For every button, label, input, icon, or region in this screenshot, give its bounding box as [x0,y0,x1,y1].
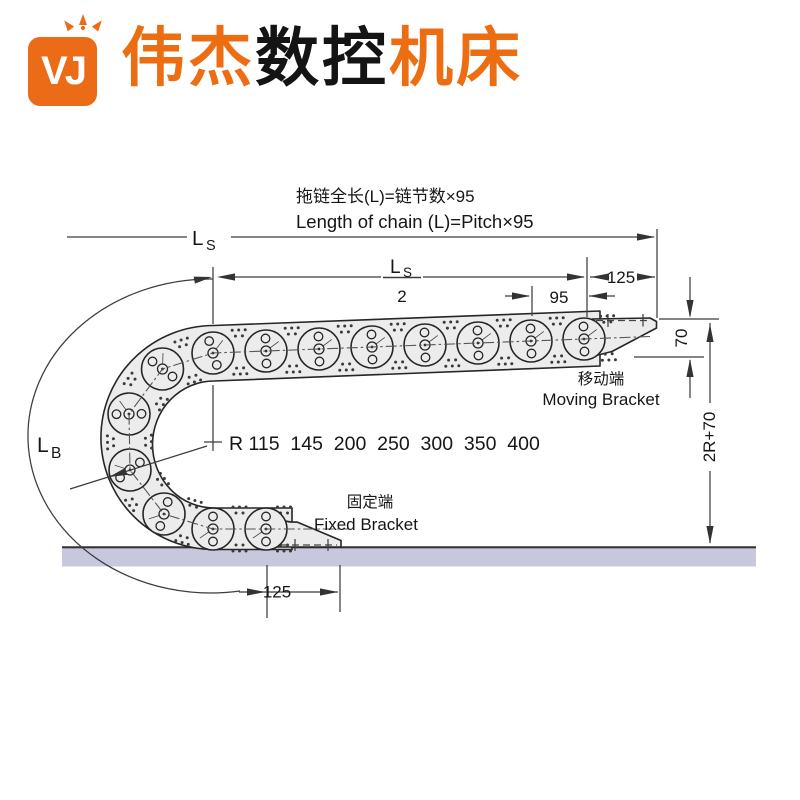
label-lb-sub: B [51,445,61,462]
rivet-dot [238,550,241,553]
rivet-dot [553,355,556,358]
rivet-dot [550,361,553,364]
label-dim-125-bottom: 125 [263,583,291,602]
label-moving-bracket-cn: 移动端 [578,370,625,388]
rivet-dot [235,544,238,547]
rivet-dot [144,444,147,447]
link-hole [205,337,214,346]
rivet-dot [167,482,170,485]
label-dim-2r-70: 2R+70 [700,412,719,463]
rivet-dot [188,376,191,379]
dimension-arrowhead [706,526,713,544]
rivet-dot [456,320,459,323]
rivet-dot [232,550,235,553]
rivet-dot [239,373,242,376]
rivet-dot [166,398,169,401]
rivet-dot [555,317,558,320]
rivet-dot [235,367,238,370]
rivet-dot [163,477,166,480]
ground-band [62,549,756,567]
rivet-dot [391,367,394,370]
rivet-dot [238,506,241,509]
rivet-dot [276,550,279,553]
rivet-dot [457,364,460,367]
rivet-dot [337,325,340,328]
rivet-dot [394,361,397,364]
rivet-dot [607,359,610,362]
dimension-arrowhead [320,588,338,595]
label-ls2-sub: S [403,265,412,280]
link-hole [261,334,270,343]
dimension-arrowhead [217,273,235,280]
rivet-dot [194,374,197,377]
rivet-dot [283,506,286,509]
label-ls2-denominator: 2 [397,287,406,306]
rivet-dot [601,359,604,362]
rivet-dot [614,358,617,361]
rivet-dot [159,397,162,400]
link-hole [580,347,589,356]
rivet-dot [112,444,115,447]
rivet-dot [557,361,560,364]
rivet-dot [602,321,605,324]
rivet-dot [398,367,401,370]
rivet-dot [181,541,184,544]
rivet-dot [241,334,244,337]
rivet-dot [174,539,177,542]
rivet-dot [187,543,190,546]
rivet-dot [188,504,191,507]
dimension-arrowhead [512,292,530,299]
rivet-dot [446,327,449,330]
link-hole [367,330,376,339]
rivet-dot [288,365,291,368]
rivet-dot [510,362,513,365]
rivet-dot [497,363,500,366]
dimension-arrowhead [686,359,693,377]
rivet-dot [604,353,607,356]
link-hole [156,522,165,531]
rivet-dot [447,359,450,362]
link-hole [168,372,177,381]
link-hole [163,498,172,507]
rivet-dot [106,434,109,437]
rivet-dot [496,319,499,322]
rivet-dot [179,534,182,537]
label-lb: L [37,434,49,457]
rivet-dot [348,362,351,365]
rivet-dot [351,368,354,371]
rivet-dot [237,329,240,332]
rivet-dot [396,323,399,326]
rivet-dot [502,319,505,322]
rivet-dot [404,366,407,369]
link-hole [136,458,145,467]
rivet-dot [231,329,234,332]
rivet-dot [106,441,109,444]
link-hole [473,326,482,335]
rivet-dot [298,370,301,373]
rivet-dot [400,328,403,331]
rivet-dot [612,314,615,317]
rivet-dot [393,329,396,332]
dimension-arrowhead [637,273,655,280]
rivet-dot [449,321,452,324]
link-hole [314,332,323,341]
rivet-dot [178,345,181,348]
rivet-dot [453,326,456,329]
rivet-dot [193,499,196,502]
link-hole [137,410,146,419]
rivet-dot [187,382,190,385]
label-ls-sub: S [206,238,216,254]
rivet-dot [180,339,183,342]
rivet-dot [343,325,346,328]
rivet-dot [193,381,196,384]
rivet-dot [242,544,245,547]
rivet-dot [289,550,292,553]
rivet-dot [507,356,510,359]
rivet-dot [562,316,565,319]
rivet-dot [186,536,189,539]
rivet-dot [159,472,162,475]
link-hole [579,322,588,331]
rivet-dot [173,341,176,344]
rivet-dot [287,333,290,336]
rivet-dot [131,498,134,501]
rivet-dot [106,447,109,450]
ground [62,547,756,566]
rivet-dot [160,484,163,487]
label-ls2: L [390,257,401,278]
rivet-dot [350,324,353,327]
rivet-dot [187,497,190,500]
label-dim-95: 95 [550,288,569,307]
link-hole [262,512,271,521]
rivet-dot [186,337,189,340]
rivet-dot [245,506,248,509]
rivet-dot [128,504,131,507]
rivet-dot [132,509,135,512]
rivet-dot [454,358,457,361]
label-dim-70: 70 [672,329,691,348]
rivet-dot [244,328,247,331]
rivet-dot [500,357,503,360]
link-hole [148,357,157,366]
rivet-dot [509,318,512,321]
rivet-dot [347,330,350,333]
page: VJ 伟杰数控机床 [0,0,800,800]
dimension-arrowhead [706,324,713,342]
rivet-dot [144,437,147,440]
rivet-dot [294,332,297,335]
rivet-dot [200,501,203,504]
dimension-arrowhead [637,233,655,240]
rivet-dot [338,369,341,372]
rivet-dot [444,365,447,368]
rivet-dot [155,402,158,405]
link-hole [209,512,218,521]
rivet-dot [283,550,286,553]
rivet-dot [158,408,161,411]
dimension-arrowhead [686,300,693,318]
drag-chain-diagram: 拖链全长(L)=链节数×95 Length of chain (L)=Pitch… [0,0,800,800]
rivet-dot [150,447,153,450]
rivet-dot [504,363,507,366]
label-radius-options: R 115 145 200 250 300 350 400 [229,433,540,455]
rivet-dot [185,343,188,346]
rivet-dot [549,317,552,320]
rivet-dot [401,360,404,363]
link-hole [474,351,483,360]
rivet-dot [499,325,502,328]
rivet-dot [123,382,126,385]
rivet-dot [341,363,344,366]
label-dim-125-top: 125 [607,268,635,287]
rivet-dot [232,506,235,509]
rivet-dot [129,383,132,386]
rivet-dot [285,371,288,374]
rivet-dot [150,434,153,437]
rivet-dot [506,324,509,327]
label-ls: L [192,227,203,250]
rivet-dot [150,440,153,443]
link-hole [420,328,429,337]
rivet-dot [195,506,198,509]
link-hole [527,349,536,358]
rivet-dot [124,499,127,502]
rivet-dot [199,379,202,382]
rivet-dot [340,331,343,334]
rivet-dot [276,506,279,509]
rivet-dot [560,354,563,357]
link-hole [209,537,218,546]
label-formula-en: Length of chain (L)=Pitch×95 [296,211,534,232]
rivet-dot [403,322,406,325]
link-hole [421,353,430,362]
dimension-arrowhead [589,292,607,299]
rivet-dot [345,369,348,372]
rivet-dot [156,478,159,481]
rivet-dot [234,335,237,338]
rivet-dot [390,323,393,326]
link-hole [213,361,222,370]
rivet-dot [290,327,293,330]
link-hole [368,355,377,364]
rivet-dot [127,377,130,380]
rivet-dot [295,364,298,367]
rivet-dot [443,321,446,324]
rivet-dot [135,503,138,506]
label-fixed-bracket-cn: 固定端 [347,493,394,511]
link-hole [112,410,121,419]
rivet-dot [112,437,115,440]
link-hole [526,324,535,333]
dimension-arrowhead [567,273,585,280]
rivet-dot [599,315,602,318]
rivet-dot [232,373,235,376]
label-moving-bracket-en: Moving Bracket [542,390,659,409]
rivet-dot [292,371,295,374]
rivet-dot [245,372,248,375]
rivet-dot [289,506,292,509]
rivet-dot [563,360,566,363]
link-hole [315,357,324,366]
rivet-dot [451,365,454,368]
rivet-dot [131,372,134,375]
rivet-dot [245,550,248,553]
rivet-dot [297,326,300,329]
rivet-dot [284,327,287,330]
rivet-dot [134,378,137,381]
rivet-dot [242,366,245,369]
rivet-dot [242,512,245,515]
rivet-dot [559,322,562,325]
rivet-dot [552,323,555,326]
rivet-dot [286,512,289,515]
label-formula-cn: 拖链全长(L)=链节数×95 [296,187,475,206]
link-hole [262,537,271,546]
link-hole [262,359,271,368]
label-fixed-bracket-en: Fixed Bracket [314,515,418,534]
rivet-dot [611,352,614,355]
rivet-dot [162,403,165,406]
rivet-dot [235,512,238,515]
